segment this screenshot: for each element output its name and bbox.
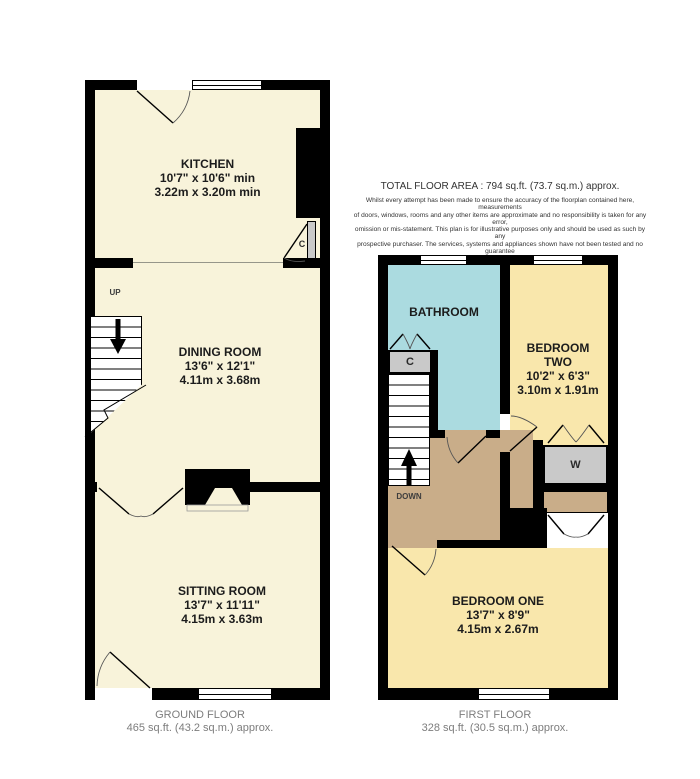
double-door-swing — [548, 515, 604, 537]
plan-linework-overlay — [0, 0, 700, 779]
door-swing — [510, 416, 537, 451]
door-swing — [392, 546, 436, 575]
fireplace — [185, 469, 250, 511]
stairs-direction-arrow — [110, 319, 126, 354]
door-swing — [137, 91, 190, 123]
door-swing — [284, 224, 307, 262]
door-swing — [447, 436, 486, 463]
double-door-swing — [548, 425, 604, 443]
double-door-swing — [390, 334, 430, 349]
door-swing — [97, 652, 150, 688]
floorplan-page: TOTAL FLOOR AREA : 794 sq.ft. (73.7 sq.m… — [0, 0, 700, 779]
stairs-break-line — [85, 385, 146, 437]
double-door-swing — [99, 488, 183, 517]
stairs-direction-arrow — [401, 449, 417, 485]
